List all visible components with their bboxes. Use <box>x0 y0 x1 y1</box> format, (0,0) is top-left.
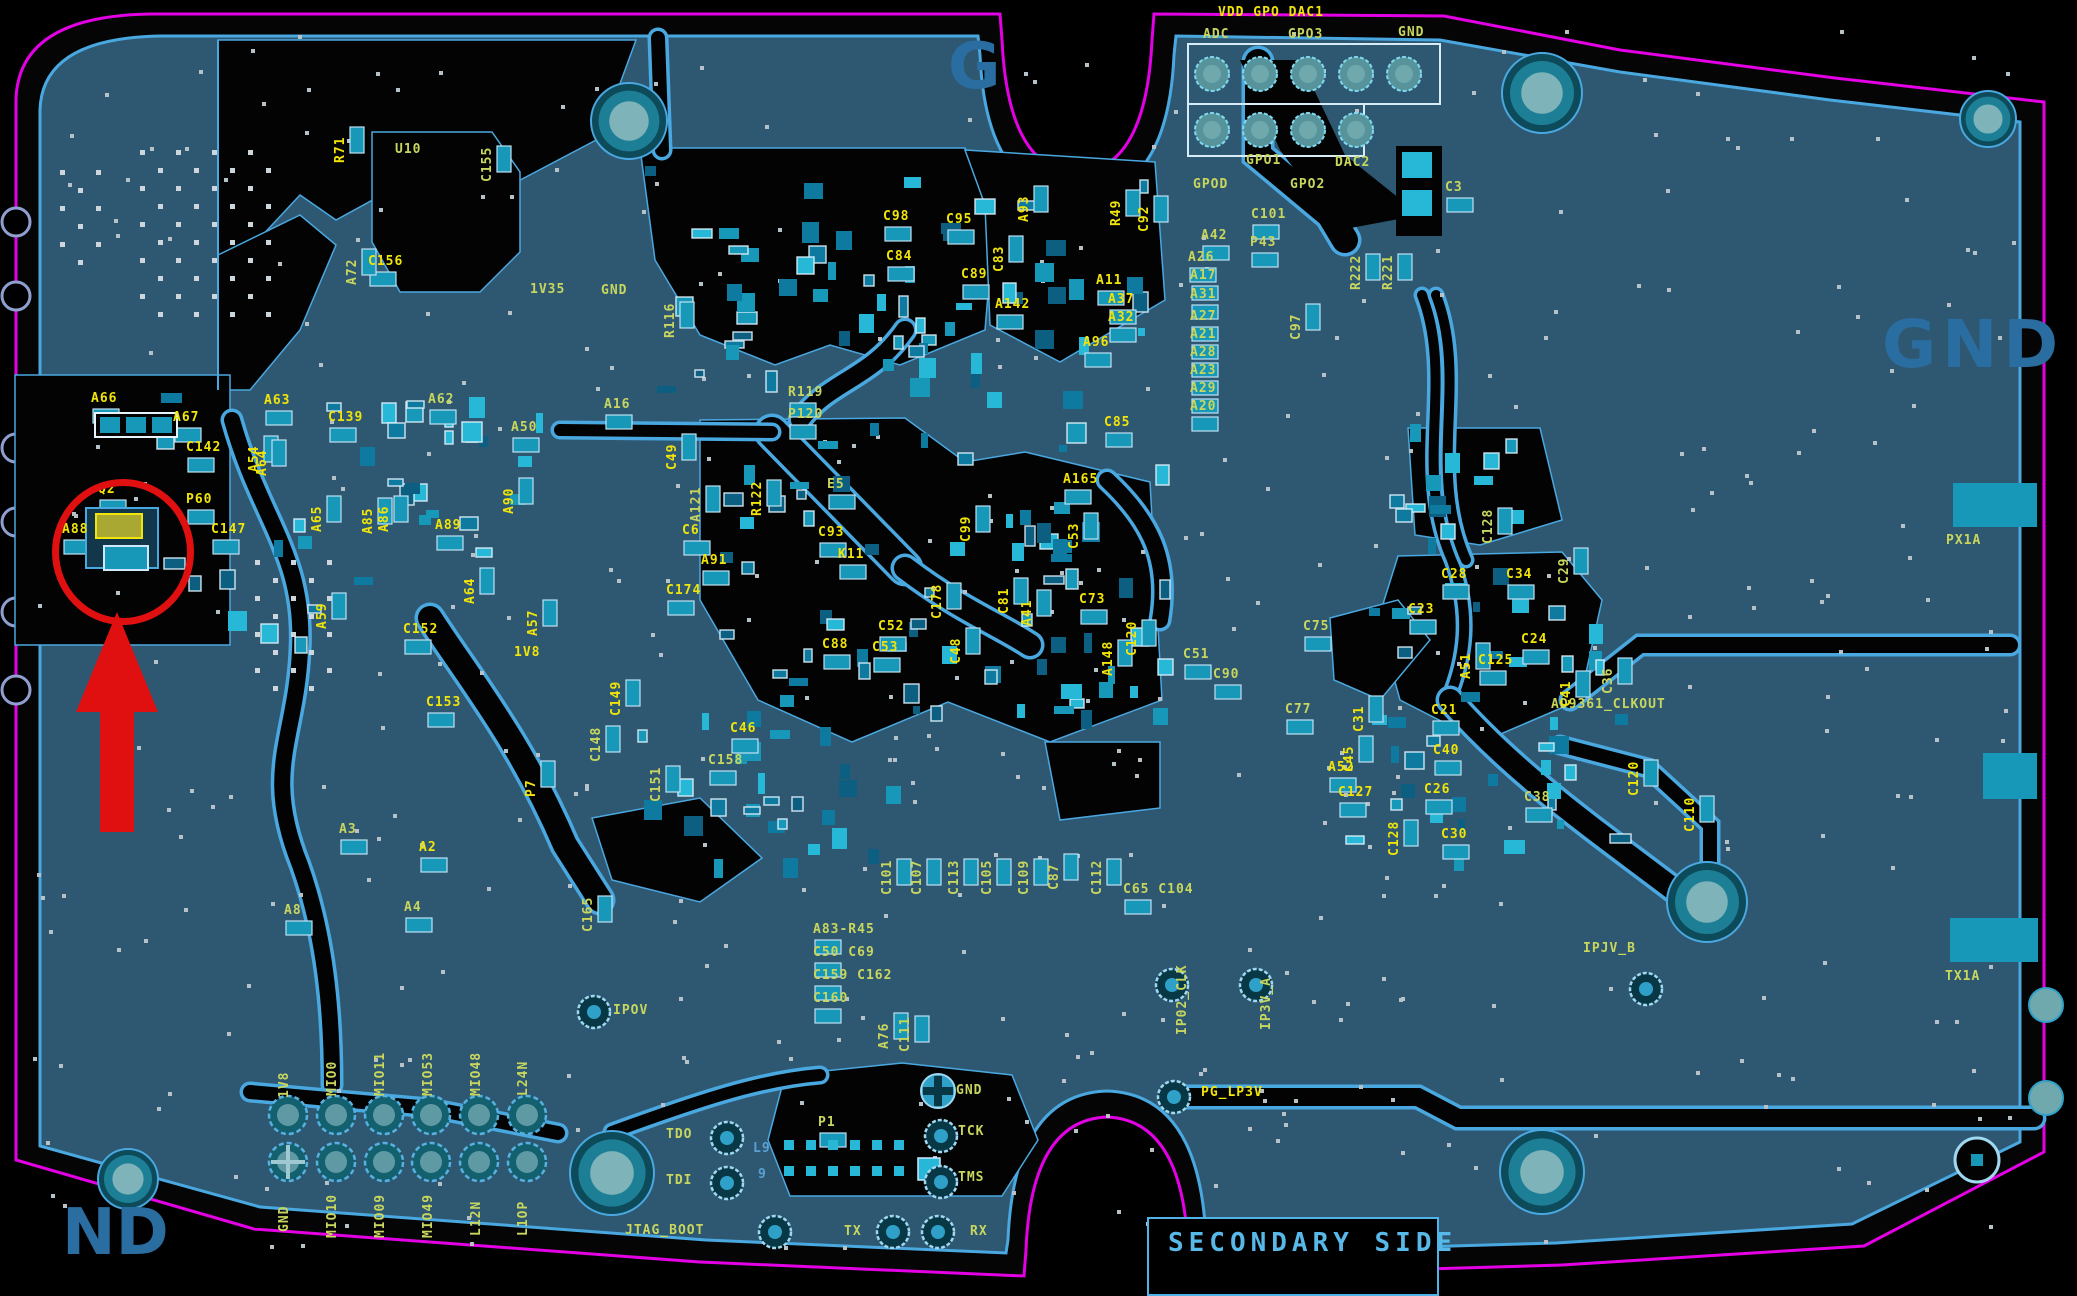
component-c3 <box>1396 146 1442 236</box>
secondary-side-label: SECONDARY SIDE <box>1168 1228 1457 1258</box>
gnd-text-top-partial: G <box>948 30 1001 104</box>
pcb-viewer-canvas: VDD GPO DAC1ADCGPO3GNDGPO1DAC2GPODGPO2C3… <box>0 0 2077 1296</box>
highlight-circle <box>52 479 194 625</box>
pcb-board-graphic <box>0 0 2077 1296</box>
gnd-text-right: GND <box>1882 306 2064 383</box>
component-a66-array <box>95 413 177 437</box>
gnd-text-bottom-left-partial: ND <box>62 1196 169 1270</box>
